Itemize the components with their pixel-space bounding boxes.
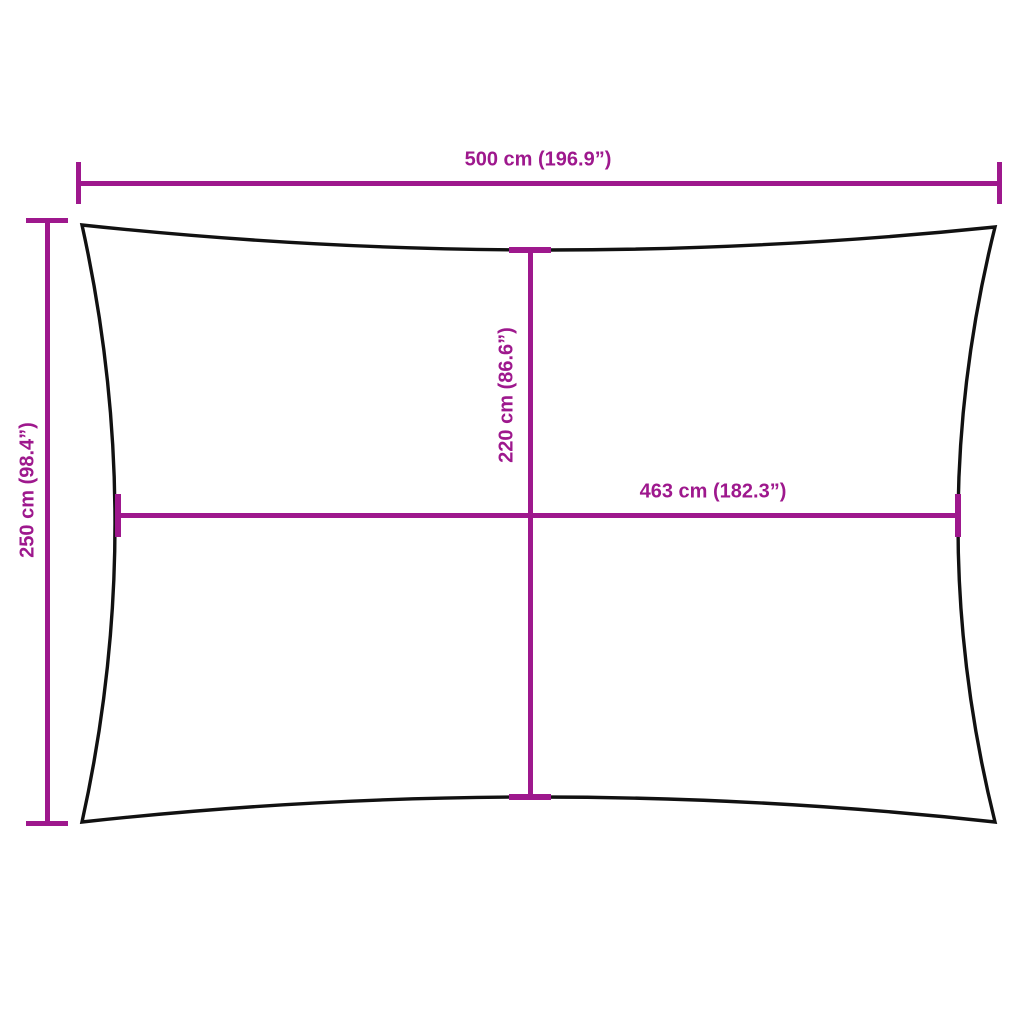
left-dimension-tick-top [26, 218, 68, 223]
inner-horizontal-dimension-tick-right [955, 494, 961, 537]
top-dimension-tick-right [997, 162, 1002, 204]
inner-vertical-dimension-label: 220 cm (86.6”) [496, 327, 519, 463]
dimension-diagram: 500 cm (196.9”) 250 cm (98.4”) 220 cm (8… [0, 0, 1024, 1024]
inner-horizontal-dimension-line [118, 513, 958, 518]
top-dimension-line [78, 181, 999, 186]
inner-horizontal-dimension-label: 463 cm (182.3”) [640, 481, 787, 504]
left-dimension-line [45, 220, 50, 823]
inner-horizontal-dimension-tick-left [115, 494, 121, 537]
shade-sail-outline [82, 225, 995, 822]
left-dimension-tick-bottom [26, 821, 68, 826]
inner-vertical-dimension-tick-top [509, 247, 551, 253]
top-dimension-tick-left [76, 162, 81, 204]
inner-vertical-dimension-line [528, 250, 533, 797]
left-dimension-label: 250 cm (98.4”) [17, 422, 40, 558]
inner-vertical-dimension-tick-bottom [509, 794, 551, 800]
top-dimension-label: 500 cm (196.9”) [465, 149, 612, 172]
